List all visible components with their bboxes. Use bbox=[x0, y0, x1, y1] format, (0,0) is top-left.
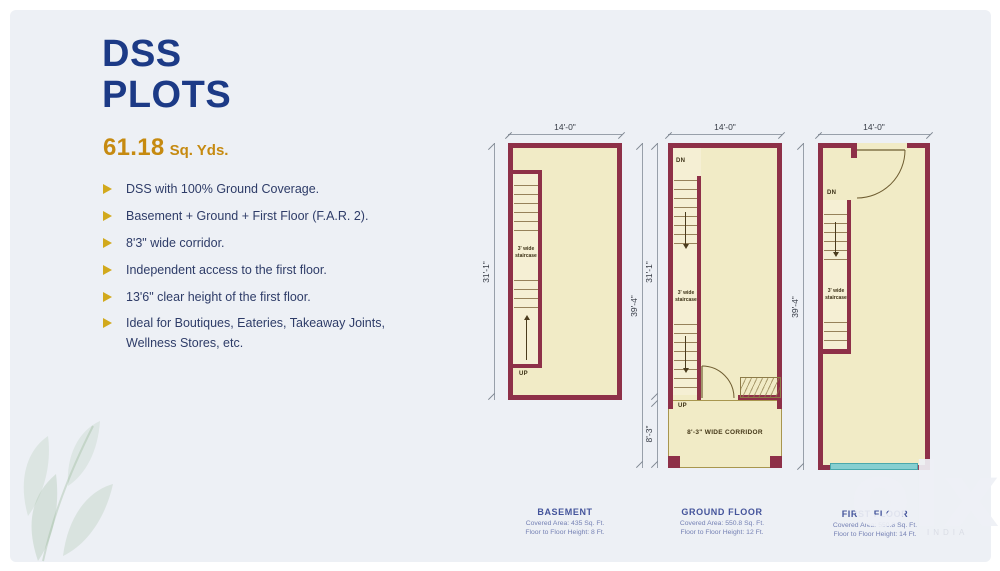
up-label: UP bbox=[678, 403, 687, 409]
dimension-line-width: 14'-0" bbox=[818, 134, 930, 135]
list-item: DSS with 100% Ground Coverage. bbox=[103, 180, 433, 199]
feature-list: DSS with 100% Ground Coverage. Basement … bbox=[103, 180, 433, 361]
stair-wall bbox=[513, 364, 542, 368]
dimension-label: 14'-0" bbox=[863, 122, 885, 132]
floor-title: GROUND FLOOR bbox=[644, 507, 800, 517]
stair-direction-arrow bbox=[835, 222, 836, 252]
dimension-line-height: 31'-1" bbox=[494, 143, 495, 400]
feature-text: Ideal for Boutiques, Eateries, Takeaway … bbox=[126, 316, 385, 349]
dimension-label: 14'-0" bbox=[554, 122, 576, 132]
feature-text: 13'6" clear height of the first floor. bbox=[126, 290, 311, 304]
stair-treads bbox=[514, 177, 538, 237]
list-item: Ideal for Boutiques, Eateries, Takeaway … bbox=[103, 314, 433, 353]
plot-area: 61.18Sq. Yds. bbox=[103, 134, 228, 162]
feature-text: DSS with 100% Ground Coverage. bbox=[126, 182, 319, 196]
feature-text: 8'3" wide corridor. bbox=[126, 236, 225, 250]
plot-area-unit: Sq. Yds. bbox=[170, 142, 229, 159]
stair-wall bbox=[538, 170, 542, 368]
olx-watermark-subtext: INDIA bbox=[927, 528, 968, 537]
olx-watermark: olx bbox=[850, 444, 1000, 547]
dimension-label: 39'-4" bbox=[790, 296, 800, 318]
list-item: Basement + Ground + First Floor (F.A.R. … bbox=[103, 207, 433, 226]
corridor-wall-stub bbox=[668, 400, 673, 409]
dimension-line-corridor-height: 8'-3" bbox=[657, 400, 658, 468]
floor-height-text: Floor to Floor Height: 12 Ft. bbox=[644, 528, 800, 537]
corridor-wall-stub bbox=[777, 400, 782, 409]
dimension-line-width: 14'-0" bbox=[668, 134, 782, 135]
title-line-2: PLOTS bbox=[102, 75, 231, 116]
bullet-triangle-icon bbox=[103, 318, 112, 328]
stair-wall bbox=[823, 349, 851, 354]
feature-text: Independent access to the first floor. bbox=[126, 263, 327, 277]
entrance-door-swing bbox=[699, 364, 737, 400]
stair-direction-arrow bbox=[685, 336, 686, 368]
entrance-step-hatch bbox=[740, 377, 781, 398]
covered-area-text: Covered Area: 550.8 Sq. Ft. bbox=[644, 519, 800, 528]
brochure-slide: DSS PLOTS 61.18Sq. Yds. DSS with 100% Gr… bbox=[0, 0, 1000, 571]
corridor-corner-wall bbox=[668, 456, 680, 468]
stair-label: 3' wide staircase bbox=[510, 246, 542, 259]
stair-direction-arrow bbox=[685, 212, 686, 244]
covered-area-text: Covered Area: 435 Sq. Ft. bbox=[487, 519, 643, 528]
stair-label: 3' wide staircase bbox=[820, 288, 852, 301]
floor-height-text: Floor to Floor Height: 8 Ft. bbox=[487, 528, 643, 537]
leaf-decoration bbox=[8, 368, 153, 563]
dimension-label: 14'-0" bbox=[714, 122, 736, 132]
stair-label: 3' wide staircase bbox=[670, 290, 702, 303]
dimension-label: 31'-1" bbox=[481, 261, 491, 283]
dimension-line-total-height: 39'-4" bbox=[642, 143, 643, 468]
dimension-label: 8'-3" bbox=[644, 426, 654, 443]
stair-direction-arrow bbox=[526, 320, 527, 360]
up-label: UP bbox=[519, 371, 528, 377]
ground-floor-caption: GROUND FLOOR Covered Area: 550.8 Sq. Ft.… bbox=[644, 507, 800, 537]
corridor-corner-wall bbox=[770, 456, 782, 468]
dimension-line-width: 14'-0" bbox=[508, 134, 622, 135]
down-label: DN bbox=[676, 158, 685, 164]
dimension-label: 31'-1" bbox=[644, 261, 654, 283]
stair-treads bbox=[824, 314, 847, 348]
corridor: 8'-3" WIDE CORRIDOR bbox=[668, 400, 782, 468]
corridor-label: 8'-3" WIDE CORRIDOR bbox=[669, 429, 781, 436]
dimension-line-unit-height: 31'-1" bbox=[657, 143, 658, 400]
bullet-triangle-icon bbox=[103, 238, 112, 248]
bullet-triangle-icon bbox=[103, 184, 112, 194]
feature-text: Basement + Ground + First Floor (F.A.R. … bbox=[126, 209, 368, 223]
bullet-triangle-icon bbox=[103, 211, 112, 221]
entrance-door-swing bbox=[850, 146, 910, 202]
page-title: DSS PLOTS bbox=[102, 34, 231, 116]
bullet-triangle-icon bbox=[103, 292, 112, 302]
bullet-triangle-icon bbox=[103, 265, 112, 275]
list-item: Independent access to the first floor. bbox=[103, 261, 433, 280]
dimension-label: 39'-4" bbox=[629, 295, 639, 317]
stair-treads bbox=[514, 272, 538, 314]
plot-area-value: 61.18 bbox=[103, 134, 165, 161]
list-item: 8'3" wide corridor. bbox=[103, 234, 433, 253]
title-line-1: DSS bbox=[102, 34, 231, 75]
basement-caption: BASEMENT Covered Area: 435 Sq. Ft. Floor… bbox=[487, 507, 643, 537]
stair-wall bbox=[847, 200, 851, 354]
dimension-line-height: 39'-4" bbox=[803, 143, 804, 470]
list-item: 13'6" clear height of the first floor. bbox=[103, 288, 433, 307]
down-label: DN bbox=[827, 190, 836, 196]
floor-title: BASEMENT bbox=[487, 507, 643, 517]
